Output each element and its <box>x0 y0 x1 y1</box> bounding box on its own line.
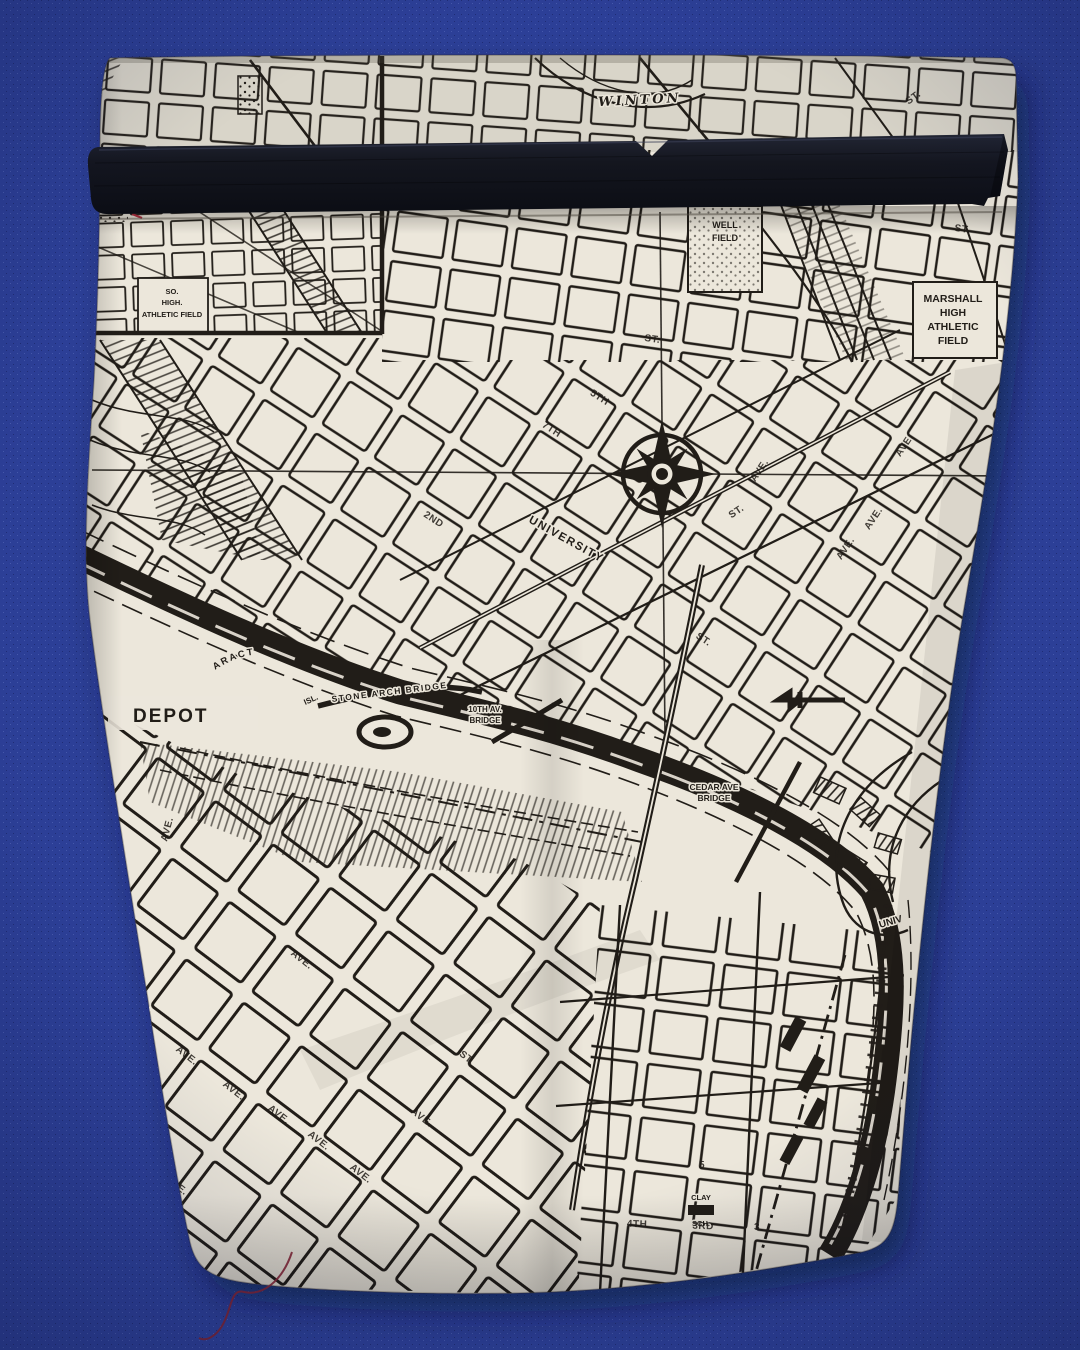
label-hospital-2: HOSPITAL <box>62 997 151 1014</box>
label-hospital-1: CITY <box>82 974 116 989</box>
label-sohigh-1: SO. <box>166 287 179 296</box>
label-tenth-2: BRIDGE <box>469 716 501 725</box>
label-marshall-4: FIELD <box>938 335 969 347</box>
label-sohigh-2: HIGH. <box>162 298 183 307</box>
photo-background: WINTON MARSHALL HIGH ATHLETIC FIELD WELL… <box>0 0 1080 1350</box>
label-marshall-2: HIGH <box>940 307 966 319</box>
street-label: ST. <box>644 333 661 346</box>
label-sohigh-3: ATHLETIC FIELD <box>142 310 203 319</box>
label-marshall-1: MARSHALL <box>924 293 983 305</box>
street-label: 5 <box>699 1160 705 1171</box>
label-lowell-2: FIELD <box>712 233 738 243</box>
label-marshall-3: ATHLETIC <box>927 321 979 333</box>
label-cedar-1: CEDAR AVE <box>689 782 738 792</box>
photo-canvas: WINTON MARSHALL HIGH ATHLETIC FIELD WELL… <box>0 0 1080 1350</box>
label-tenth-1: 10TH AV. <box>468 705 502 714</box>
strap <box>88 134 1008 214</box>
label-cedar-2: BRIDGE <box>697 793 730 803</box>
label-depot: DEPOT <box>133 706 208 727</box>
